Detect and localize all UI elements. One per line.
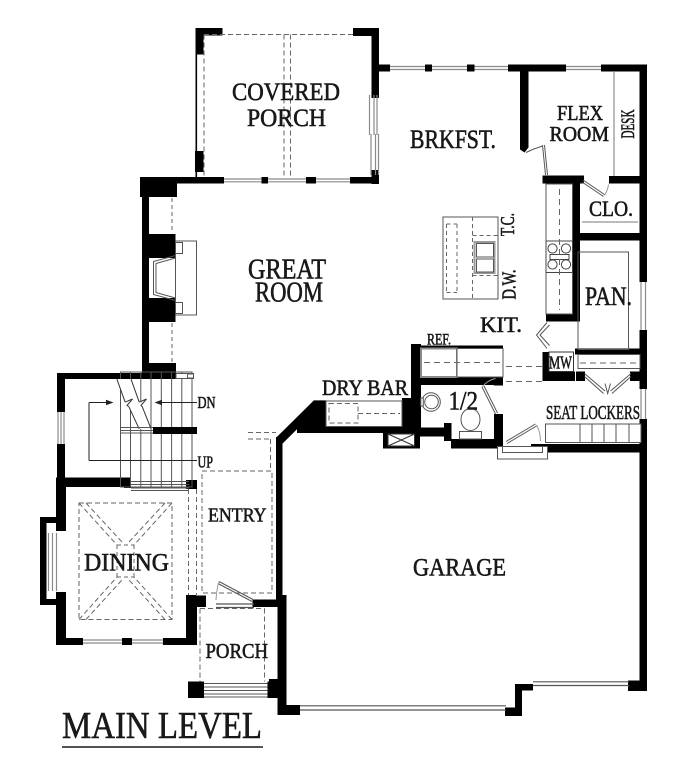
svg-text:CLO.: CLO. bbox=[589, 196, 633, 221]
svg-text:D.W.: D.W. bbox=[499, 270, 521, 300]
svg-text:DINING: DINING bbox=[84, 550, 169, 577]
svg-text:UP: UP bbox=[198, 453, 214, 472]
svg-text:DN: DN bbox=[198, 393, 216, 412]
svg-text:T.C.: T.C. bbox=[497, 213, 519, 236]
svg-text:COVERED: COVERED bbox=[232, 79, 340, 106]
svg-text:BRKFST.: BRKFST. bbox=[410, 125, 496, 154]
svg-text:DRY BAR: DRY BAR bbox=[322, 375, 408, 400]
svg-text:MW: MW bbox=[549, 353, 572, 373]
svg-text:ENTRY: ENTRY bbox=[208, 505, 267, 527]
svg-text:1/2: 1/2 bbox=[449, 387, 479, 416]
svg-text:PAN.: PAN. bbox=[585, 282, 632, 311]
svg-text:SEAT LOCKERS: SEAT LOCKERS bbox=[546, 402, 640, 424]
svg-text:ROOM: ROOM bbox=[550, 122, 610, 146]
svg-text:GARAGE: GARAGE bbox=[413, 555, 506, 582]
svg-text:KIT.: KIT. bbox=[480, 312, 522, 337]
svg-text:ROOM: ROOM bbox=[255, 278, 323, 309]
svg-text:PORCH: PORCH bbox=[247, 105, 326, 132]
svg-text:PORCH: PORCH bbox=[206, 639, 269, 663]
svg-text:MAIN LEVEL: MAIN LEVEL bbox=[62, 705, 262, 747]
svg-text:REF.: REF. bbox=[427, 332, 451, 349]
svg-text:DESK: DESK bbox=[618, 109, 639, 138]
